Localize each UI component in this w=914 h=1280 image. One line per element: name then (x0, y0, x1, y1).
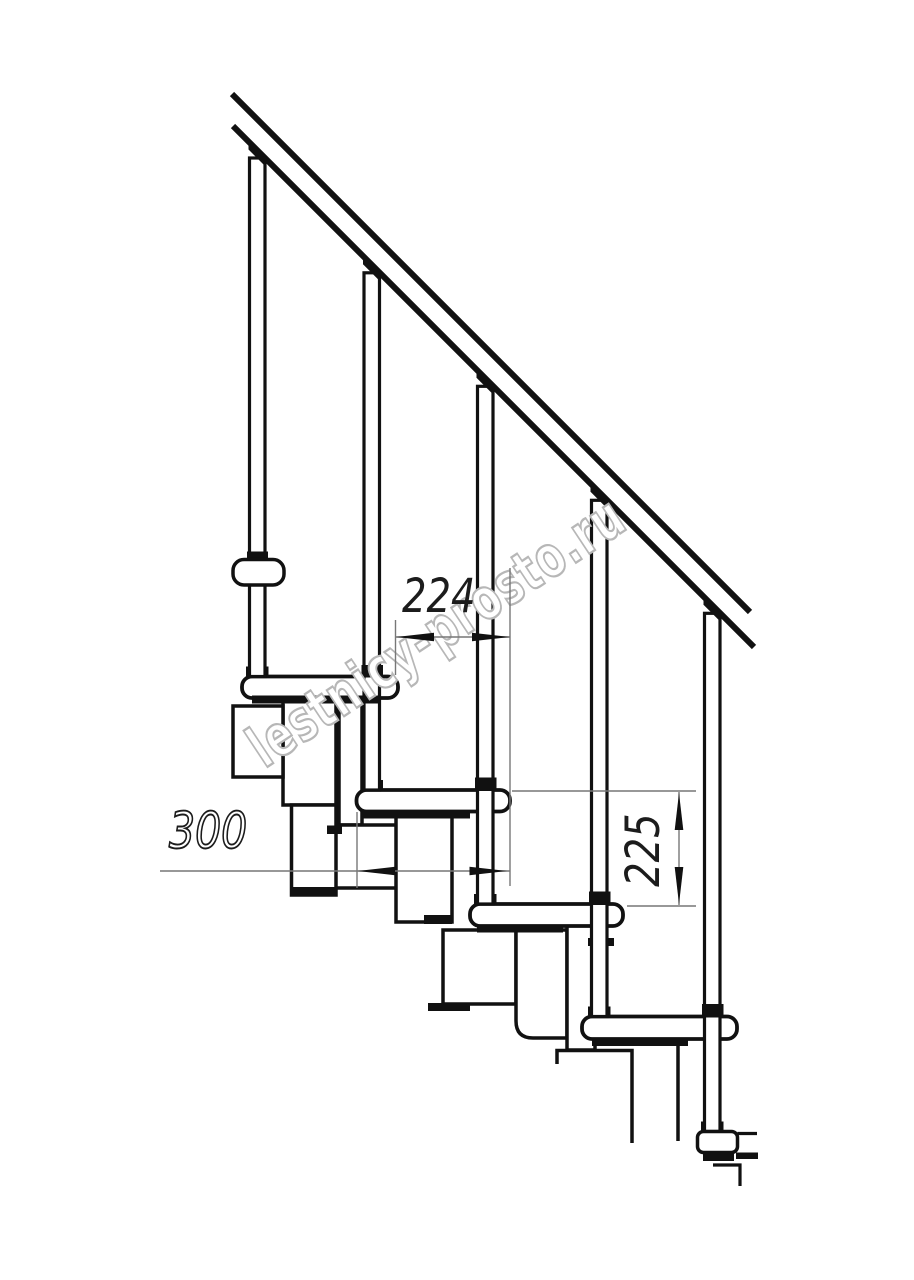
going-arrow-left (396, 633, 434, 641)
dimension-label-going: 224 (402, 569, 492, 624)
dimension-label-tread-length-value: 300 (169, 802, 247, 860)
treadlen-arrow-right (470, 867, 508, 875)
dimension-label-rise: 225 (598, 805, 688, 895)
going-arrow-right (472, 633, 510, 641)
treadlen-arrow-left (358, 867, 396, 875)
dimension-layer (0, 0, 914, 1280)
dimension-label-going-value: 224 (402, 569, 476, 624)
dimension-label-rise-value: 225 (616, 813, 671, 887)
staircase-drawing: lestnicy-prosto.ru 224 (0, 0, 914, 1280)
dimension-label-tread-length: 300 (169, 802, 264, 860)
